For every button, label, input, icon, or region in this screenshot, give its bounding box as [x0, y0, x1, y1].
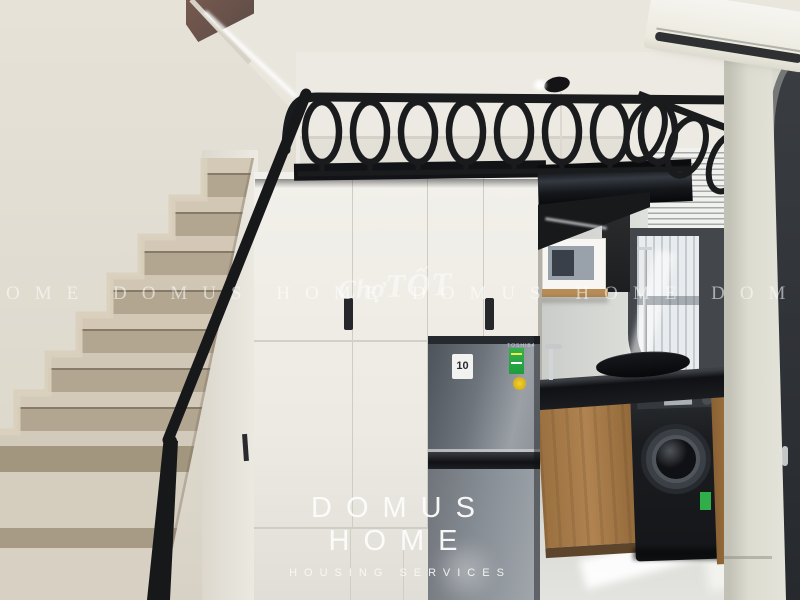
faucet — [549, 348, 553, 380]
chotot-caps: TỐT — [385, 267, 453, 305]
apartment-photo: TOSHIBA 10 OME DOMUS HOME DOMUS HOME DOM… — [0, 0, 800, 600]
fridge-inverter-badge: 10 — [452, 354, 473, 379]
faucet-spout — [545, 344, 562, 349]
logo-subtitle: HOUSING SERVICES — [250, 567, 550, 579]
fridge-yellow-sticker — [513, 377, 526, 390]
watermark-chotot: ChợTỐT — [337, 265, 499, 317]
microwave-box-door — [552, 250, 574, 276]
door-handle — [782, 446, 788, 466]
loft-edge-band — [294, 160, 546, 181]
logo-title: DOMUS HOME — [250, 492, 550, 558]
washer-energy-sticker — [700, 492, 711, 510]
fridge-energy-label — [509, 348, 524, 374]
washer-kick-shadow — [633, 548, 723, 560]
watermark-logo: DOMUS HOME HOUSING SERVICES — [250, 492, 550, 562]
washer-door-glass — [652, 435, 700, 483]
fridge-energy-label-bar — [511, 362, 522, 364]
chotot-script: Chợ — [337, 273, 386, 305]
wardrobe-seam — [483, 172, 484, 340]
downlight-glare — [531, 79, 549, 91]
counter-rod-top — [637, 247, 652, 250]
fridge-handle-recess — [428, 452, 540, 469]
wardrobe-seam — [352, 172, 353, 527]
column-baseboard-line — [724, 556, 772, 559]
fridge-energy-label-bar — [511, 353, 522, 355]
